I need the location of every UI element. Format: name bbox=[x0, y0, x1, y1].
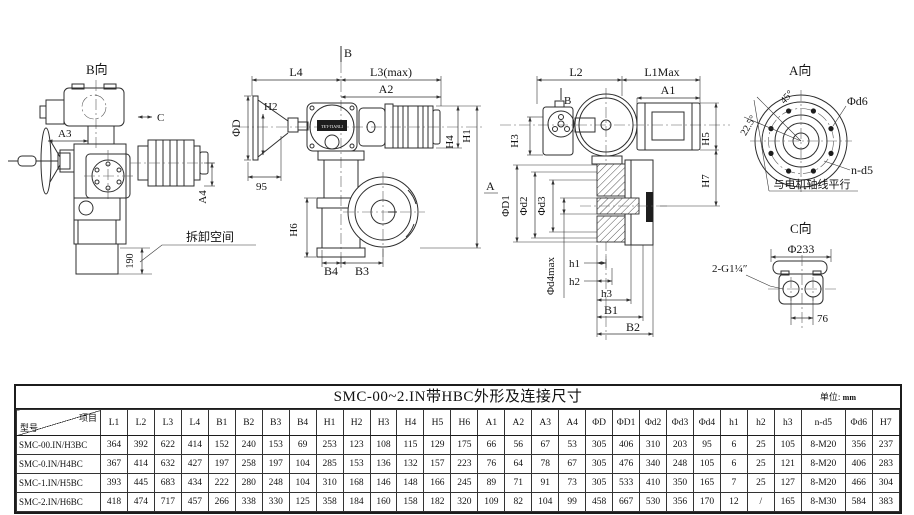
value-cell: 127 bbox=[774, 474, 801, 493]
view-a-direction: A向 45° 22.5° Φd6 n-d5 与电机轴线平行 bbox=[739, 63, 873, 192]
label-b3: B3 bbox=[355, 264, 369, 278]
value-cell: 305 bbox=[586, 474, 613, 493]
junction-box bbox=[40, 80, 124, 150]
value-cell: 165 bbox=[693, 474, 720, 493]
value-cell: 166 bbox=[424, 474, 451, 493]
unit-value: mm bbox=[843, 393, 856, 402]
column-header-B2: B2 bbox=[235, 410, 262, 436]
value-cell: 109 bbox=[478, 493, 505, 512]
value-cell: 56 bbox=[505, 436, 532, 455]
column-header-L3: L3 bbox=[154, 410, 181, 436]
column-header-H2: H2 bbox=[343, 410, 370, 436]
label-l1max: L1Max bbox=[644, 65, 679, 79]
column-header-h1: h1 bbox=[720, 410, 747, 436]
value-cell: 89 bbox=[478, 474, 505, 493]
value-cell: 245 bbox=[451, 474, 478, 493]
value-cell: 105 bbox=[774, 436, 801, 455]
value-cell: 406 bbox=[845, 455, 872, 474]
label-phi-d: ΦD bbox=[229, 119, 243, 137]
value-cell: 157 bbox=[424, 455, 451, 474]
value-cell: 182 bbox=[424, 493, 451, 512]
label-removal-space: 拆卸空间 bbox=[186, 229, 234, 244]
column-header-L2: L2 bbox=[127, 410, 154, 436]
table-header-row: 项目 型号 L1L2L3L4B1B2B3B4H1H2H3H4H5H6A1A2A3… bbox=[17, 410, 900, 436]
value-cell: 64 bbox=[505, 455, 532, 474]
value-cell: 115 bbox=[397, 436, 424, 455]
label-n-d5: n-d5 bbox=[851, 163, 873, 177]
value-cell: 121 bbox=[774, 455, 801, 474]
value-cell: 25 bbox=[747, 436, 774, 455]
value-cell: 8-M20 bbox=[801, 455, 845, 474]
value-cell: 237 bbox=[872, 436, 899, 455]
value-cell: 7 bbox=[720, 474, 747, 493]
value-cell: 253 bbox=[316, 436, 343, 455]
column-header-L1: L1 bbox=[101, 410, 128, 436]
table-row: SMC-1.IN/H5BC393445683434222280248104310… bbox=[17, 474, 900, 493]
model-cell: SMC-1.IN/H5BC bbox=[17, 474, 101, 493]
view-front: B L4 L3(max) A2 H2 ΦD 95 bbox=[229, 46, 482, 278]
model-cell: SMC-00.IN/H3BC bbox=[17, 436, 101, 455]
value-cell: 153 bbox=[343, 455, 370, 474]
value-cell: 285 bbox=[316, 455, 343, 474]
value-cell: 69 bbox=[289, 436, 316, 455]
value-cell: 383 bbox=[872, 493, 899, 512]
value-cell: 165 bbox=[774, 493, 801, 512]
label-a1: A1 bbox=[661, 83, 676, 97]
view-b-direction: B向 C A3 bbox=[8, 62, 256, 274]
column-header-H5: H5 bbox=[424, 410, 451, 436]
value-cell: 6 bbox=[720, 436, 747, 455]
column-header-L4: L4 bbox=[181, 410, 208, 436]
table-title: SMC-00~2.IN带HBC外形及连接尺寸 bbox=[334, 389, 583, 405]
value-cell: 25 bbox=[747, 455, 774, 474]
label-76: 76 bbox=[817, 313, 829, 325]
value-cell: 414 bbox=[181, 436, 208, 455]
value-cell: 222 bbox=[208, 474, 235, 493]
value-cell: 367 bbox=[101, 455, 128, 474]
value-cell: 310 bbox=[640, 436, 667, 455]
value-cell: 458 bbox=[586, 493, 613, 512]
column-header-Φd3: Φd3 bbox=[667, 410, 694, 436]
value-cell: 364 bbox=[101, 436, 128, 455]
value-cell: 320 bbox=[451, 493, 478, 512]
label-a2: A2 bbox=[379, 82, 394, 96]
label-l3max: L3(max) bbox=[370, 65, 412, 79]
label-h2-small: h2 bbox=[569, 276, 580, 288]
value-cell: 338 bbox=[235, 493, 262, 512]
label-c-arrow: C bbox=[157, 112, 164, 124]
label-a4: A4 bbox=[197, 190, 209, 204]
label-h5: H5 bbox=[700, 132, 712, 146]
value-cell: / bbox=[747, 493, 774, 512]
value-cell: 622 bbox=[154, 436, 181, 455]
value-cell: 8-M20 bbox=[801, 436, 845, 455]
value-cell: 240 bbox=[235, 436, 262, 455]
value-cell: 474 bbox=[127, 493, 154, 512]
model-cell: SMC-0.IN/H4BC bbox=[17, 455, 101, 474]
output-flange-section bbox=[580, 156, 668, 245]
value-cell: 427 bbox=[181, 455, 208, 474]
value-cell: 356 bbox=[667, 493, 694, 512]
value-cell: 168 bbox=[343, 474, 370, 493]
value-cell: 632 bbox=[154, 455, 181, 474]
value-cell: 356 bbox=[845, 436, 872, 455]
value-cell: 152 bbox=[208, 436, 235, 455]
label-thread: 2-G1¼″ bbox=[712, 263, 747, 275]
value-cell: 78 bbox=[532, 455, 559, 474]
column-header-A4: A4 bbox=[559, 410, 586, 436]
value-cell: 67 bbox=[532, 436, 559, 455]
value-cell: 223 bbox=[451, 455, 478, 474]
column-header-H6: H6 bbox=[451, 410, 478, 436]
value-cell: 158 bbox=[397, 493, 424, 512]
label-phi-d1: ΦD1 bbox=[500, 195, 512, 216]
view-b-title: B向 bbox=[86, 62, 108, 77]
label-a-section: A bbox=[486, 179, 495, 193]
label-b-section: B bbox=[344, 46, 352, 60]
column-header-ΦD: ΦD bbox=[586, 410, 613, 436]
value-cell: 8-M30 bbox=[801, 493, 845, 512]
label-95: 95 bbox=[256, 181, 268, 193]
value-cell: 136 bbox=[370, 455, 397, 474]
label-h3: H3 bbox=[509, 134, 521, 148]
column-header-ΦD1: ΦD1 bbox=[613, 410, 640, 436]
label-phi-233: Φ233 bbox=[788, 242, 815, 256]
flange-circle-front bbox=[343, 172, 425, 257]
value-cell: 330 bbox=[262, 493, 289, 512]
value-cell: 530 bbox=[640, 493, 667, 512]
column-header-A1: A1 bbox=[478, 410, 505, 436]
label-phi-d6: Φd6 bbox=[847, 94, 868, 108]
label-phi-d3: Φd3 bbox=[536, 196, 548, 216]
technical-drawing: B向 C A3 bbox=[0, 0, 914, 374]
value-cell: 132 bbox=[397, 455, 424, 474]
value-cell: 305 bbox=[586, 455, 613, 474]
value-cell: 410 bbox=[640, 474, 667, 493]
motor-front bbox=[359, 104, 440, 148]
column-header-Φd4: Φd4 bbox=[693, 410, 720, 436]
value-cell: 25 bbox=[747, 474, 774, 493]
value-cell: 148 bbox=[397, 474, 424, 493]
value-cell: 104 bbox=[289, 455, 316, 474]
value-cell: 393 bbox=[101, 474, 128, 493]
value-cell: 160 bbox=[370, 493, 397, 512]
label-b-mark: B bbox=[564, 95, 571, 107]
value-cell: 53 bbox=[559, 436, 586, 455]
column-header-A2: A2 bbox=[505, 410, 532, 436]
label-a3: A3 bbox=[58, 128, 72, 140]
value-cell: 283 bbox=[872, 455, 899, 474]
value-cell: 184 bbox=[343, 493, 370, 512]
value-cell: 123 bbox=[343, 436, 370, 455]
view-side: L2 L1Max A1 B H3 bbox=[484, 65, 730, 340]
value-cell: 153 bbox=[262, 436, 289, 455]
label-h1-small: h1 bbox=[569, 258, 580, 270]
column-header-Φd2: Φd2 bbox=[640, 410, 667, 436]
model-cell: SMC-2.IN/H6BC bbox=[17, 493, 101, 512]
value-cell: 82 bbox=[505, 493, 532, 512]
value-cell: 73 bbox=[559, 474, 586, 493]
label-h6: H6 bbox=[288, 223, 300, 237]
corner-model-label: 型号 bbox=[20, 421, 38, 434]
value-cell: 445 bbox=[127, 474, 154, 493]
value-cell: 104 bbox=[289, 474, 316, 493]
value-cell: 533 bbox=[613, 474, 640, 493]
value-cell: 683 bbox=[154, 474, 181, 493]
column-header-B4: B4 bbox=[289, 410, 316, 436]
column-header-H3: H3 bbox=[370, 410, 397, 436]
column-header-n-d5: n-d5 bbox=[801, 410, 845, 436]
label-l4: L4 bbox=[289, 65, 302, 79]
value-cell: 6 bbox=[720, 455, 747, 474]
value-cell: 584 bbox=[845, 493, 872, 512]
value-cell: 197 bbox=[262, 455, 289, 474]
motor-face-housing bbox=[543, 101, 595, 155]
motor-side bbox=[130, 140, 214, 186]
value-cell: 248 bbox=[667, 455, 694, 474]
column-header-H4: H4 bbox=[397, 410, 424, 436]
label-h1: H1 bbox=[461, 129, 473, 142]
view-c-title: C向 bbox=[790, 221, 812, 236]
value-cell: 99 bbox=[559, 493, 586, 512]
value-cell: 105 bbox=[693, 455, 720, 474]
handwheel-front bbox=[253, 96, 308, 160]
value-cell: 457 bbox=[181, 493, 208, 512]
value-cell: 91 bbox=[532, 474, 559, 493]
value-cell: 8-M20 bbox=[801, 474, 845, 493]
column-header-h2: h2 bbox=[747, 410, 774, 436]
column-header-B3: B3 bbox=[262, 410, 289, 436]
label-motor-axis-note: 与电机轴线平行 bbox=[774, 177, 851, 191]
value-cell: 358 bbox=[316, 493, 343, 512]
value-cell: 170 bbox=[693, 493, 720, 512]
page: { "views": { "b_view": { "title": "B向", … bbox=[0, 0, 914, 515]
column-header-H1: H1 bbox=[316, 410, 343, 436]
label-h4: H4 bbox=[444, 135, 456, 149]
value-cell: 466 bbox=[845, 474, 872, 493]
label-l2: L2 bbox=[569, 65, 582, 79]
value-cell: 406 bbox=[613, 436, 640, 455]
actuator-body bbox=[60, 126, 134, 274]
label-b1: B1 bbox=[604, 303, 618, 317]
label-h3-small: h3 bbox=[601, 288, 613, 300]
table-row: SMC-0.IN/H4BC367414632427197258197104285… bbox=[17, 455, 900, 474]
value-cell: 414 bbox=[127, 455, 154, 474]
value-cell: 146 bbox=[370, 474, 397, 493]
value-cell: 248 bbox=[262, 474, 289, 493]
value-cell: 350 bbox=[667, 474, 694, 493]
value-cell: 392 bbox=[127, 436, 154, 455]
value-cell: 197 bbox=[208, 455, 235, 474]
value-cell: 129 bbox=[424, 436, 451, 455]
label-b2: B2 bbox=[626, 320, 640, 334]
column-header-A3: A3 bbox=[532, 410, 559, 436]
label-phi-d4max: Φd4max bbox=[545, 257, 557, 295]
value-cell: 71 bbox=[505, 474, 532, 493]
view-a-title: A向 bbox=[789, 63, 811, 78]
value-cell: 667 bbox=[613, 493, 640, 512]
value-cell: 108 bbox=[370, 436, 397, 455]
value-cell: 266 bbox=[208, 493, 235, 512]
table-row: SMC-00.IN/H3BC36439262241415224015369253… bbox=[17, 436, 900, 455]
value-cell: 476 bbox=[613, 455, 640, 474]
label-b4: B4 bbox=[324, 264, 338, 278]
value-cell: 340 bbox=[640, 455, 667, 474]
value-cell: 280 bbox=[235, 474, 262, 493]
value-cell: 304 bbox=[872, 474, 899, 493]
label-190: 190 bbox=[125, 254, 136, 269]
corner-cell: 项目 型号 bbox=[17, 410, 101, 436]
corner-item-label: 项目 bbox=[79, 411, 97, 424]
value-cell: 66 bbox=[478, 436, 505, 455]
value-cell: 717 bbox=[154, 493, 181, 512]
value-cell: 67 bbox=[559, 455, 586, 474]
value-cell: 95 bbox=[693, 436, 720, 455]
value-cell: 104 bbox=[532, 493, 559, 512]
label-45deg: 45° bbox=[778, 88, 796, 106]
column-header-B1: B1 bbox=[208, 410, 235, 436]
value-cell: 175 bbox=[451, 436, 478, 455]
dimension-table: SMC-00~2.IN带HBC外形及连接尺寸 单位: mm 项目 型号 L1L2… bbox=[14, 384, 902, 514]
label-h2: H2 bbox=[264, 101, 277, 113]
view-c-direction: C向 Φ233 2-G1¼″ 76 bbox=[712, 221, 836, 330]
label-h7: H7 bbox=[700, 174, 712, 188]
label-phi-d2: Φd2 bbox=[518, 196, 530, 215]
value-cell: 203 bbox=[667, 436, 694, 455]
column-header-Φd6: Φd6 bbox=[845, 410, 872, 436]
table-title-row: SMC-00~2.IN带HBC外形及连接尺寸 单位: mm bbox=[16, 386, 900, 409]
table-body: SMC-00.IN/H3BC36439262241415224015369253… bbox=[17, 436, 900, 512]
column-header-H7: H7 bbox=[872, 410, 899, 436]
motor-box-side bbox=[637, 103, 700, 150]
spec-table: 项目 型号 L1L2L3L4B1B2B3B4H1H2H3H4H5H6A1A2A3… bbox=[16, 409, 900, 512]
value-cell: 12 bbox=[720, 493, 747, 512]
column-header-h3: h3 bbox=[774, 410, 801, 436]
value-cell: 434 bbox=[181, 474, 208, 493]
value-cell: 125 bbox=[289, 493, 316, 512]
value-cell: 310 bbox=[316, 474, 343, 493]
nameplate-text: TET-TIANLI bbox=[321, 124, 343, 129]
value-cell: 305 bbox=[586, 436, 613, 455]
unit-label: 单位: mm bbox=[820, 386, 856, 409]
table-row: SMC-2.IN/H6BC418474717457266338330125358… bbox=[17, 493, 900, 512]
value-cell: 258 bbox=[235, 455, 262, 474]
value-cell: 76 bbox=[478, 455, 505, 474]
value-cell: 418 bbox=[101, 493, 128, 512]
